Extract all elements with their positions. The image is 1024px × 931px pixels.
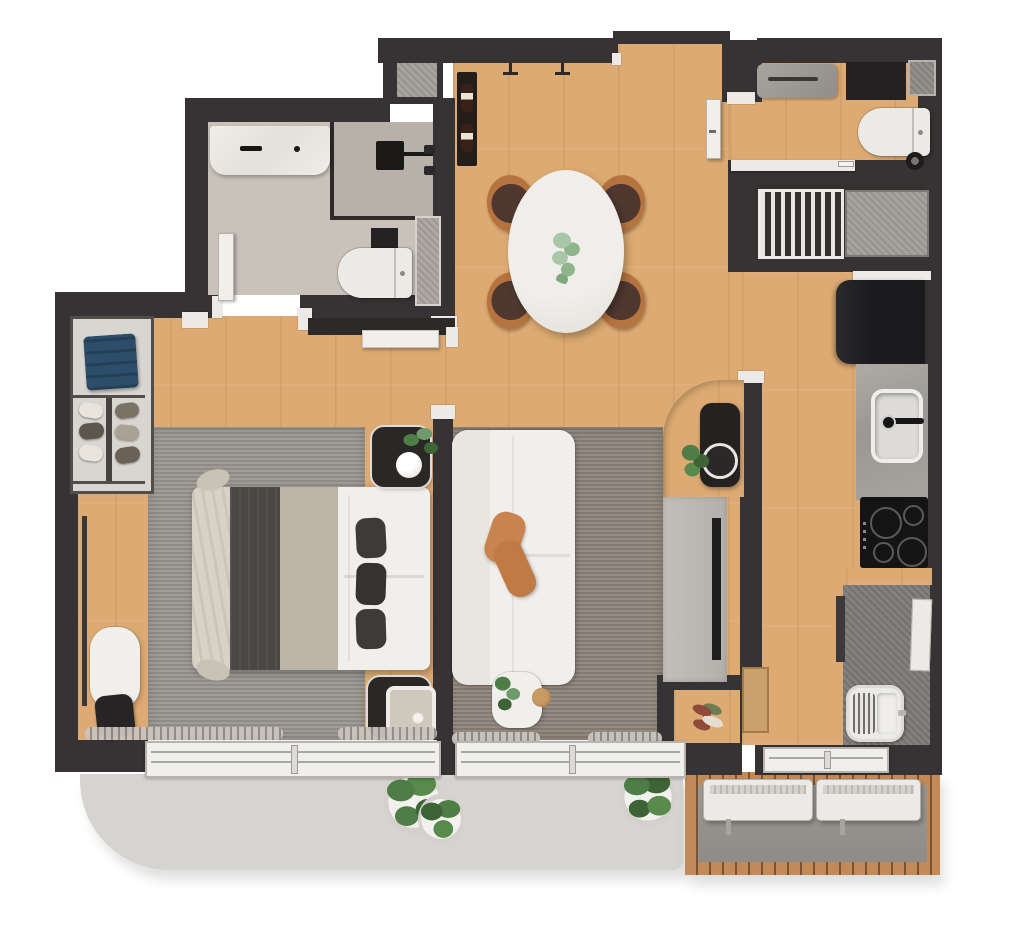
toilet-tank-line — [394, 248, 396, 298]
sliding-door-panel — [362, 330, 439, 348]
shoe — [78, 422, 105, 441]
shower-valve — [424, 145, 435, 154]
broom-item — [836, 596, 845, 662]
burner — [873, 542, 894, 563]
wall-entry-recess — [613, 31, 730, 44]
shoe — [78, 443, 104, 462]
shoe-rack-rail — [106, 398, 112, 484]
wood-step-stool — [742, 667, 769, 733]
bedroom-window — [145, 741, 441, 778]
window-mullion — [291, 745, 298, 774]
entry-door-leaf — [706, 99, 721, 159]
floor-plan — [0, 0, 1024, 931]
pillow-seam — [348, 495, 350, 662]
curtain — [338, 727, 437, 740]
tv-screen — [712, 518, 721, 660]
wall-bedroom-living — [433, 418, 453, 740]
service-cabinet — [846, 62, 906, 100]
sofa-backrest — [452, 430, 490, 685]
entry-door-handle — [709, 130, 716, 133]
wall-top-a — [378, 38, 618, 63]
kitchen-faucet-knob — [881, 415, 896, 430]
wall-bathroom-left — [185, 98, 208, 318]
coat-hook — [503, 72, 518, 75]
ac-unit-foot — [726, 819, 731, 835]
potted-plant — [418, 794, 464, 844]
bed-foot-throw — [192, 487, 234, 670]
laundry-tub — [846, 685, 904, 742]
side-table-plant — [488, 668, 530, 720]
ironing-board — [910, 599, 933, 672]
curtain — [85, 727, 283, 740]
tub-faucet — [898, 710, 906, 716]
open-wardrobe — [70, 316, 154, 494]
window-mullion — [569, 745, 576, 774]
bed-blanket-dark — [230, 487, 280, 670]
bed-blanket-mid — [280, 487, 338, 670]
laundry-window — [763, 747, 889, 773]
window-mullion — [824, 751, 831, 769]
ac-vent-grille — [823, 785, 914, 794]
shower-glass-partition — [330, 216, 418, 220]
accent-pillow — [355, 562, 386, 605]
toilet-flush-button — [918, 130, 923, 135]
shoe — [114, 401, 140, 419]
ac-condenser-unit — [703, 779, 813, 821]
shoe — [114, 445, 141, 465]
shaft-sliding-panel — [731, 160, 855, 171]
ac-condenser-unit — [816, 779, 921, 821]
counter-edge — [853, 271, 931, 280]
cooktop-controls — [863, 517, 866, 549]
wall-bathroom-top — [185, 98, 390, 122]
wc-toilet — [858, 108, 930, 156]
ac-unit-foot — [840, 819, 845, 835]
vanity-counter — [210, 126, 330, 175]
nook-plant — [678, 438, 714, 480]
bathroom-door-leaf — [218, 233, 234, 301]
accent-pillow — [355, 517, 387, 559]
kitchen-sink — [871, 389, 923, 463]
nightstand-plant — [398, 424, 442, 464]
concrete-shaft — [845, 190, 929, 257]
toilet-flush-button — [400, 271, 405, 276]
wood-bowl-decor — [532, 688, 551, 707]
service-niche — [908, 60, 936, 96]
entry-threshold — [727, 92, 755, 104]
decor-vase — [412, 712, 424, 724]
shower-head — [376, 141, 404, 170]
refrigerator — [836, 280, 925, 364]
cooktop — [860, 497, 928, 568]
sliding-door-jamb — [446, 327, 458, 347]
drying-rack-grille — [758, 189, 844, 259]
burner — [897, 537, 927, 567]
accent-pillow — [355, 608, 386, 649]
toilet-tank-line — [912, 108, 914, 156]
washer-counter — [757, 64, 837, 98]
blue-folded-clothes — [83, 333, 139, 390]
counter-wood-strip — [846, 568, 932, 585]
wardrobe-shelf-divider — [73, 481, 145, 484]
bathroom-niche — [415, 216, 441, 306]
wall-cap — [182, 312, 208, 328]
waste-bin — [906, 152, 924, 170]
wine-bottle — [461, 124, 473, 152]
table-centerpiece-plant — [546, 226, 586, 284]
living-room-window — [455, 741, 686, 778]
floor-mirror — [82, 516, 87, 706]
wall-cap — [612, 53, 621, 65]
wine-bottle — [461, 84, 473, 112]
shower-valve — [424, 166, 435, 175]
vanity-drain — [294, 146, 300, 152]
wall-bottom-left-corner — [55, 740, 148, 772]
cistern-box — [371, 228, 398, 248]
ac-vent-grille — [710, 785, 806, 794]
shower-floor — [333, 122, 433, 220]
tub-basin — [877, 693, 897, 734]
shower-glass-partition — [330, 122, 334, 220]
bathroom-toilet — [338, 248, 412, 298]
balcony-terrace-slab — [80, 774, 683, 870]
shoe — [78, 401, 104, 420]
coat-hook — [555, 72, 570, 75]
burner — [870, 507, 902, 539]
washboard-ridges — [853, 693, 875, 734]
shoe — [114, 424, 139, 441]
bed — [192, 487, 430, 670]
burner — [903, 505, 924, 526]
wall-cap — [431, 405, 455, 419]
shaft-panel-handle — [838, 161, 854, 167]
vanity-faucet — [240, 146, 262, 151]
washer-handle — [768, 77, 818, 81]
